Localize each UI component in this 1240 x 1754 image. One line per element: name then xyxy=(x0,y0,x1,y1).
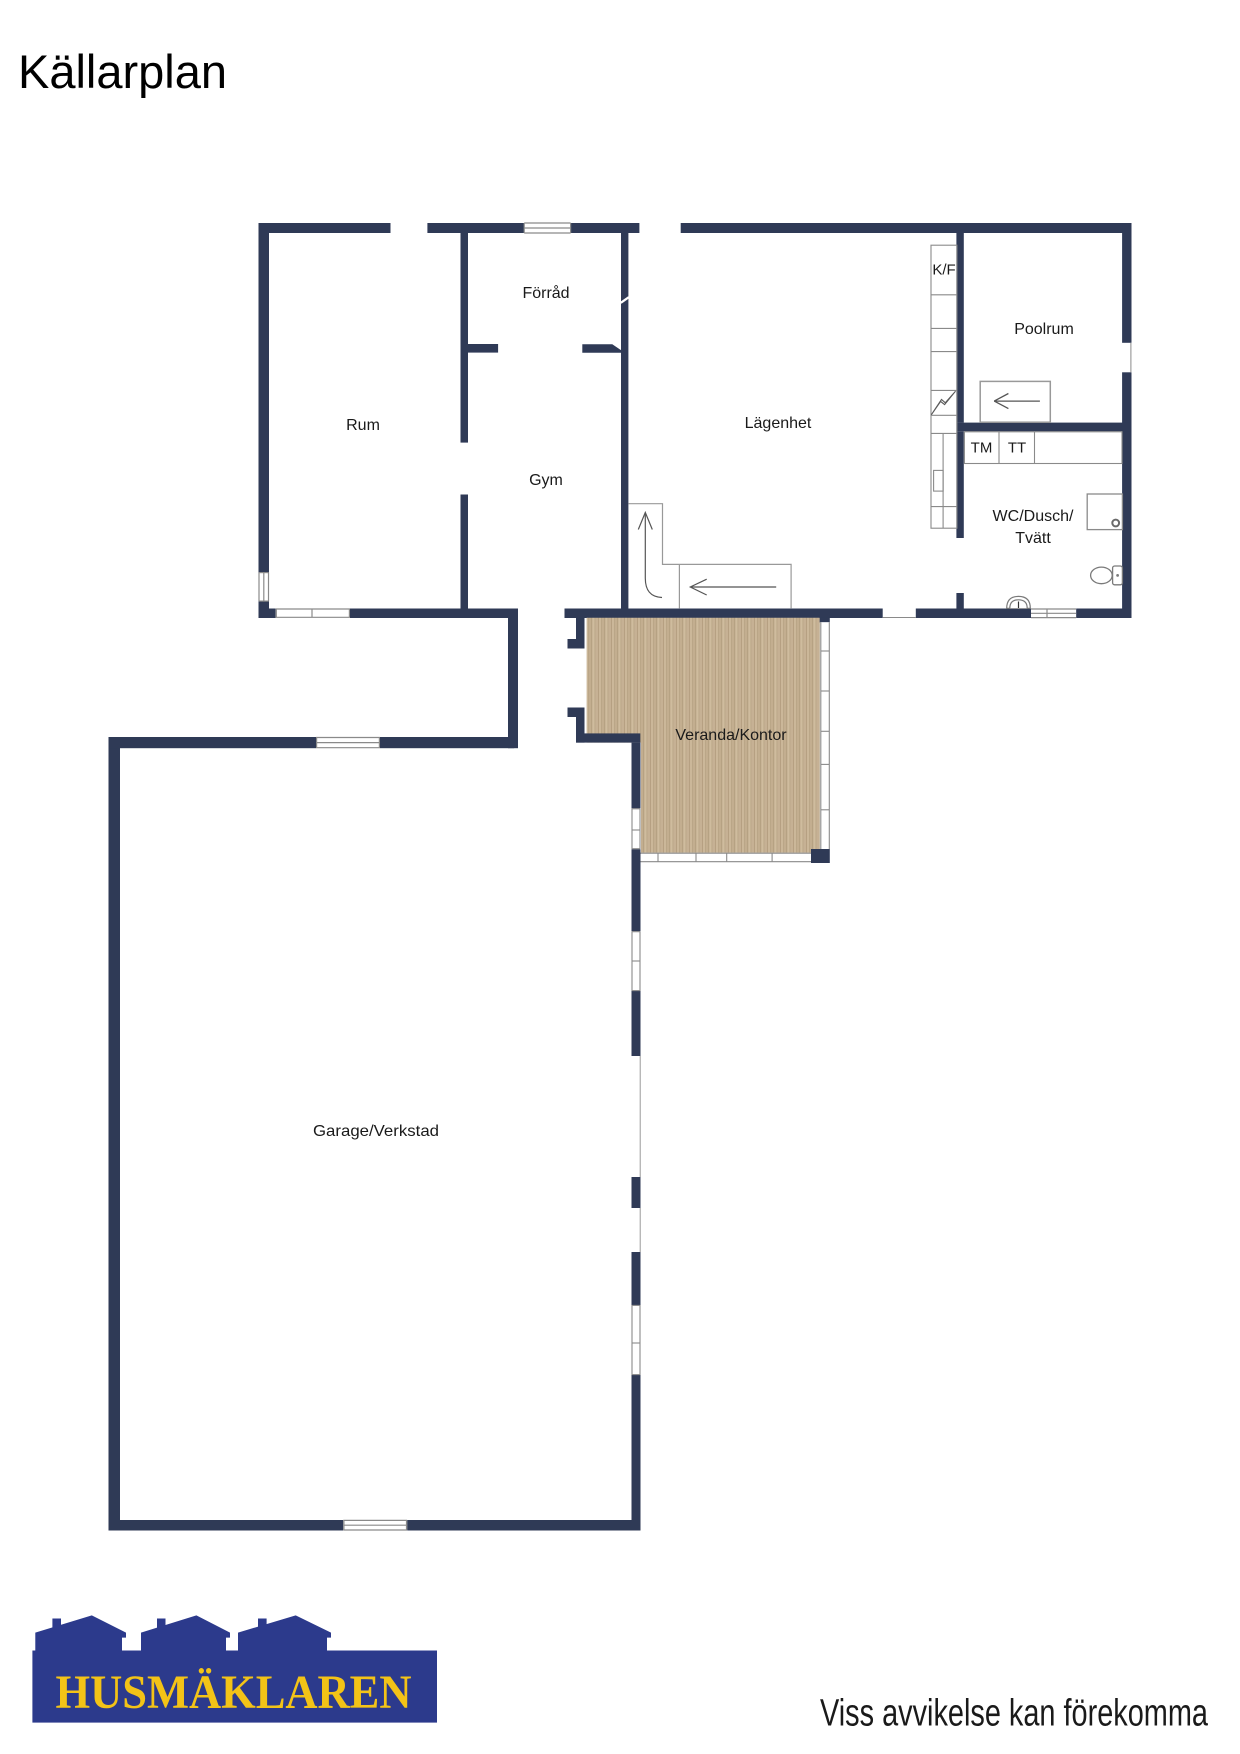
svg-text:Rum: Rum xyxy=(346,417,380,434)
svg-text:Lägenhet: Lägenhet xyxy=(745,415,812,432)
svg-text:Förråd: Förråd xyxy=(522,284,569,302)
svg-text:Garage/Verkstad: Garage/Verkstad xyxy=(313,1123,439,1140)
svg-text:Tvätt: Tvätt xyxy=(1015,530,1051,547)
svg-text:TT: TT xyxy=(1008,440,1026,457)
svg-text:TM: TM xyxy=(971,440,993,457)
svg-text:Gym: Gym xyxy=(529,472,563,489)
svg-text:K/F: K/F xyxy=(932,262,955,279)
svg-text:Veranda/Kontor: Veranda/Kontor xyxy=(675,727,787,744)
svg-text:Viss avvikelse kan förekomma: Viss avvikelse kan förekomma xyxy=(820,1693,1209,1735)
svg-text:HUSMÄKLAREN: HUSMÄKLAREN xyxy=(56,1666,412,1719)
svg-text:Källarplan: Källarplan xyxy=(18,45,227,98)
svg-text:Poolrum: Poolrum xyxy=(1014,321,1074,338)
svg-text:WC/Dusch/: WC/Dusch/ xyxy=(993,508,1074,525)
